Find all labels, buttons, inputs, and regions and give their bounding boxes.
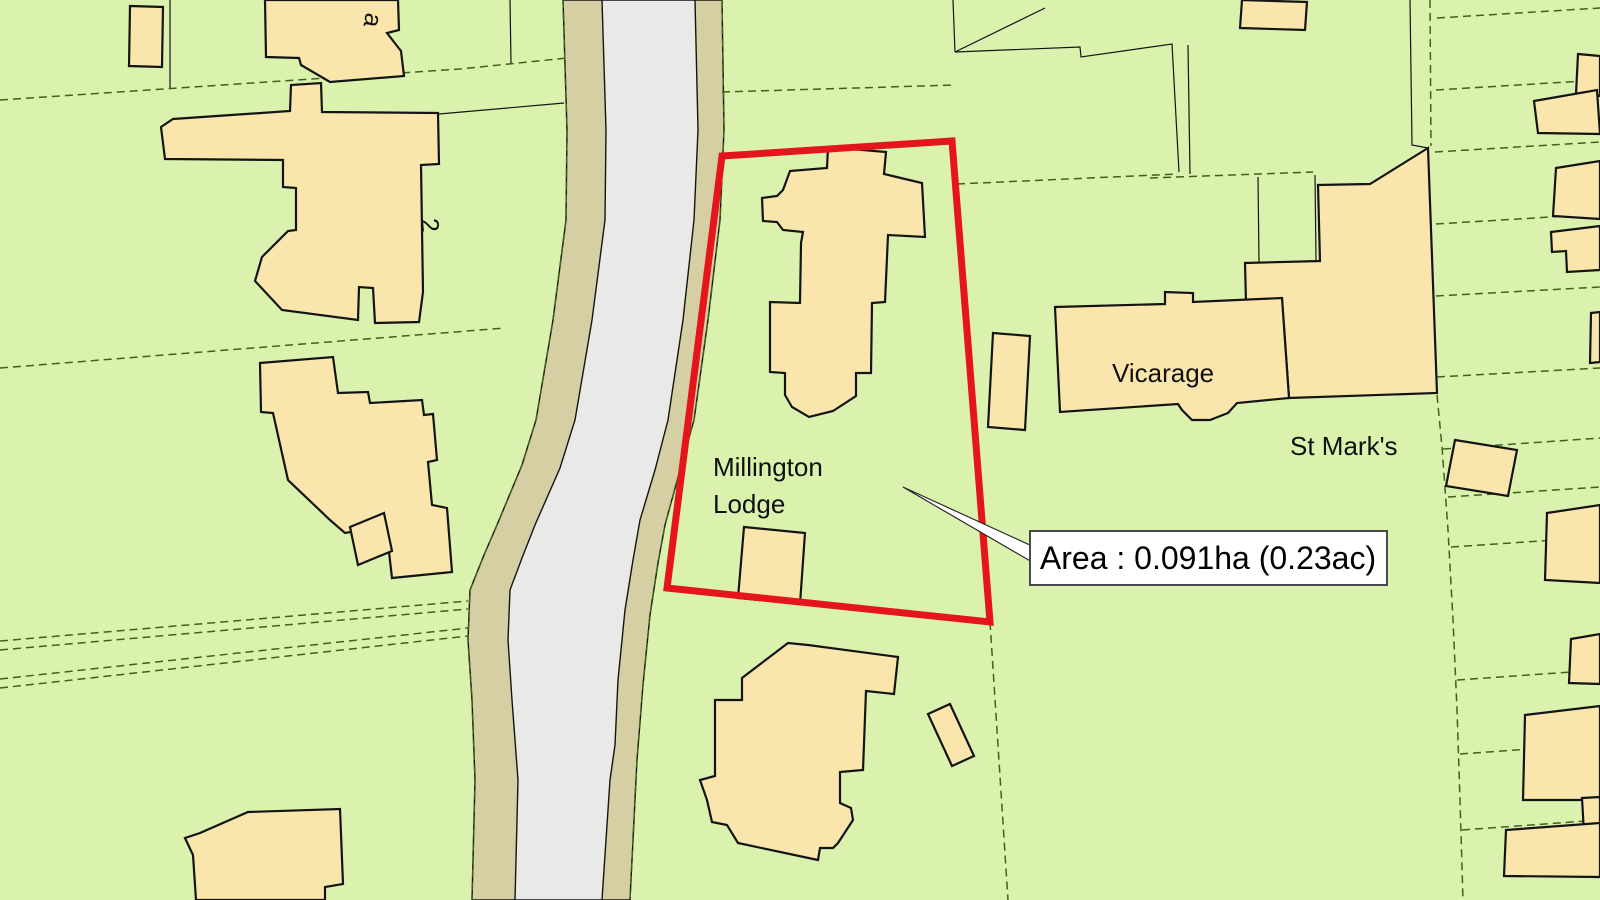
building bbox=[1569, 634, 1600, 684]
building bbox=[1553, 161, 1600, 219]
label-house-number: 2 bbox=[415, 217, 444, 233]
label-st-marks: St Mark's bbox=[1290, 431, 1398, 461]
building bbox=[1240, 0, 1307, 30]
building bbox=[1590, 312, 1600, 363]
label-millington-line1: Millington bbox=[713, 452, 823, 482]
label-vicarage: Vicarage bbox=[1112, 358, 1214, 388]
building bbox=[1504, 823, 1600, 877]
outbuilding bbox=[988, 333, 1030, 430]
building bbox=[1523, 706, 1600, 800]
callout-area-text: Area : 0.091ha (0.23ac) bbox=[1040, 540, 1376, 576]
vicarage-building bbox=[1055, 292, 1289, 420]
building bbox=[1545, 505, 1600, 583]
site-plan-map: a 2 Millington Lodge Vicarage St Mark's … bbox=[0, 0, 1600, 900]
building bbox=[1446, 440, 1517, 496]
outbuilding bbox=[738, 527, 805, 604]
building bbox=[129, 6, 163, 67]
label-millington-line2: Lodge bbox=[713, 489, 785, 519]
